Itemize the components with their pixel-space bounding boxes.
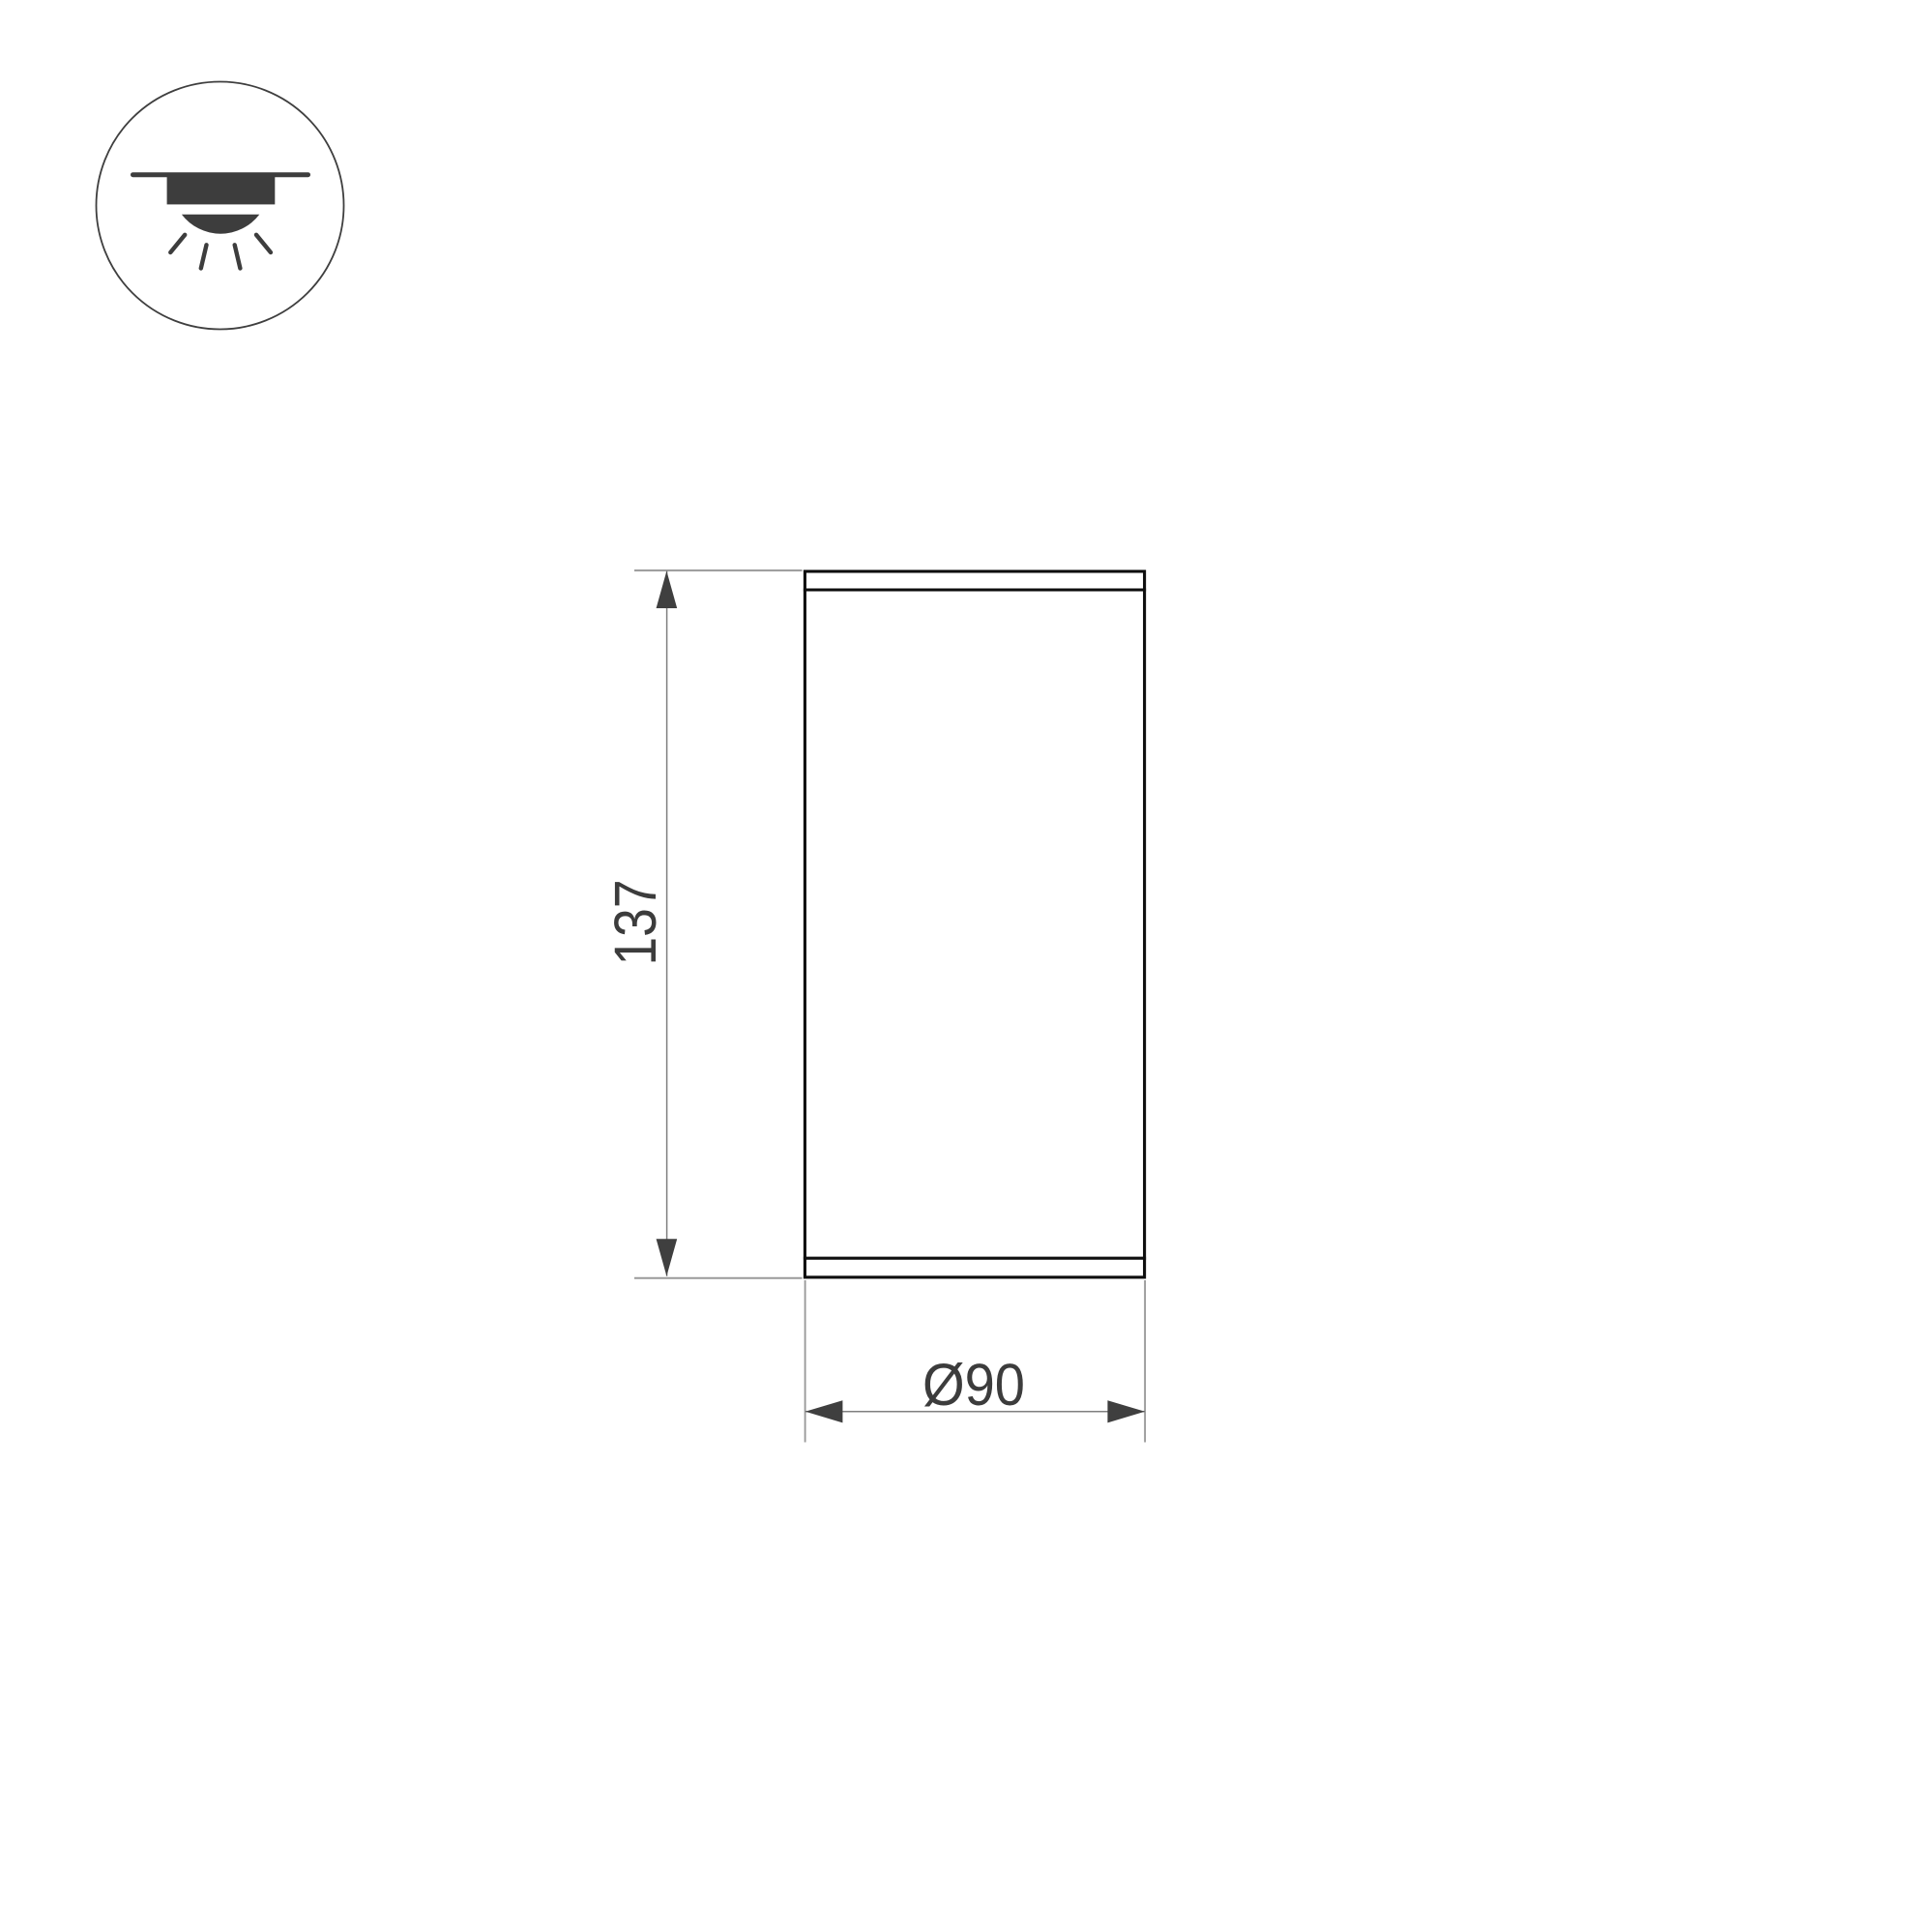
svg-text:Ø90: Ø90 [922,1352,1025,1418]
svg-text:137: 137 [602,880,668,966]
